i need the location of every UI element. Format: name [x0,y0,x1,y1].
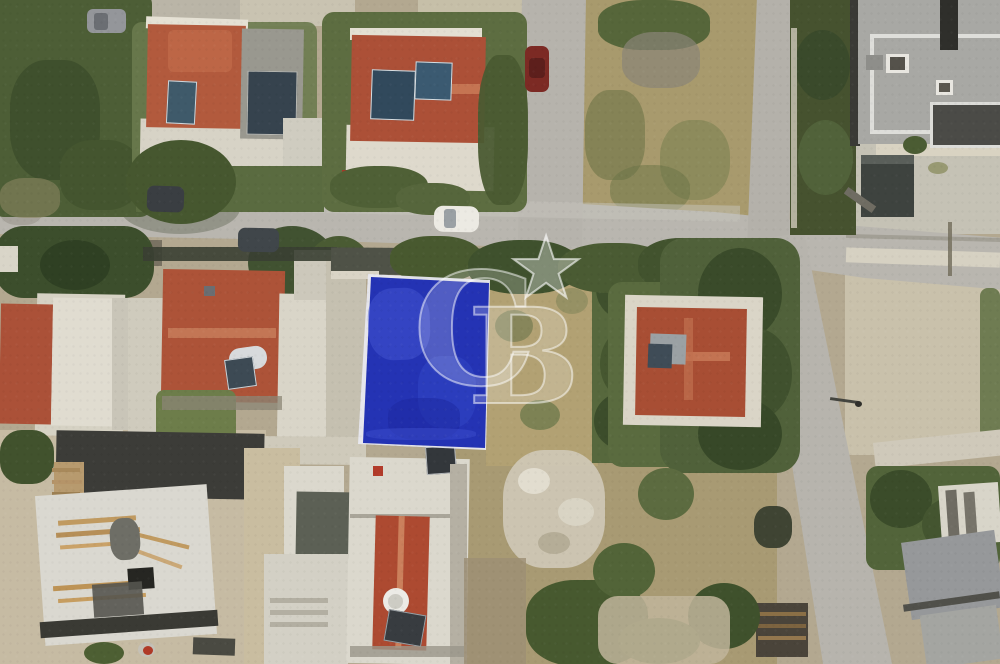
aerial-photo: ★ C B [0,0,1000,664]
photo-grain-overlay [0,0,1000,664]
